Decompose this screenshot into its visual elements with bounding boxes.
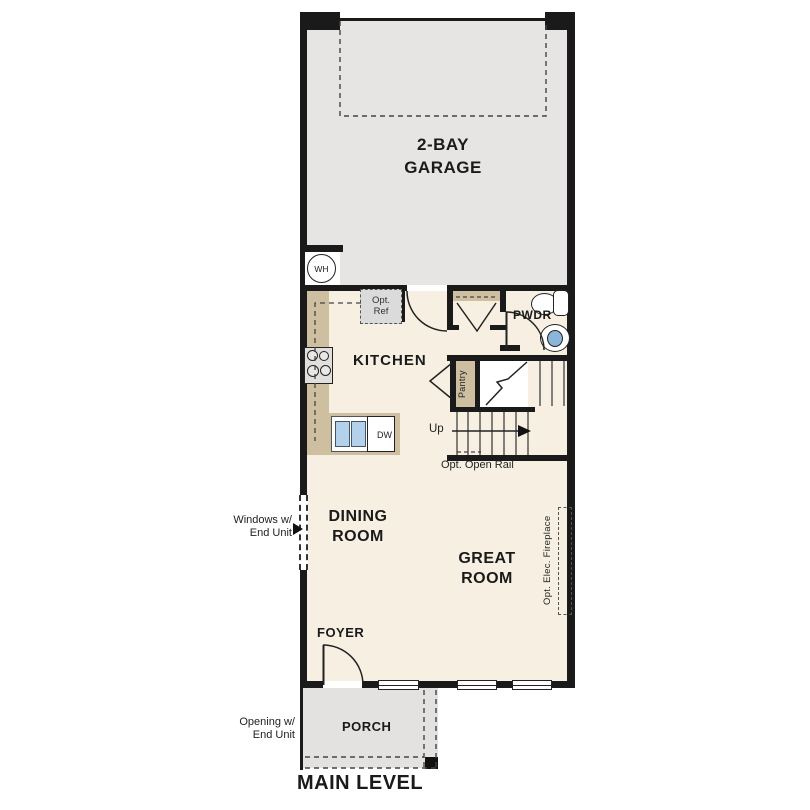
garage-label: 2-BAY GARAGE [343, 134, 543, 180]
windows-annotation-line1: Windows w/ [220, 514, 292, 527]
great-label-line2: ROOM [430, 569, 544, 589]
great-room-label: GREAT ROOM [430, 549, 544, 589]
wall-bottom-c [417, 681, 457, 688]
wall-wh-niche-top [303, 245, 343, 252]
powder-sink-basin-icon [547, 330, 563, 347]
floor-plan: WH Opt. Ref DW [0, 0, 810, 810]
sink-bowl [335, 421, 350, 447]
burner-icon [307, 365, 319, 377]
wall-stairs-mid [450, 407, 535, 412]
window [512, 680, 552, 690]
stove [304, 347, 333, 384]
garage-label-line2: GARAGE [343, 157, 543, 180]
wall-closet-stub-left [447, 325, 459, 330]
wall-bottom-d [495, 681, 512, 688]
windows-annotation-line2: End Unit [220, 527, 292, 540]
fireplace-label: Opt. Elec. Fireplace [542, 503, 556, 617]
stair-upper-run [480, 361, 528, 407]
window [457, 680, 497, 690]
opt-ref-label-line2: Ref [374, 307, 389, 318]
water-heater: WH [307, 254, 336, 283]
dining-room-label: DINING ROOM [308, 507, 408, 547]
plan-title: MAIN LEVEL [297, 772, 423, 795]
porch-post [425, 757, 438, 769]
main-level-floor [307, 291, 567, 681]
garage-label-line1: 2-BAY [343, 134, 543, 157]
wall-bottom-a [300, 681, 323, 688]
dishwasher-label: DW [376, 430, 393, 440]
optional-refrigerator: Opt. Ref [360, 289, 402, 324]
wall-pantry-right [475, 361, 480, 407]
water-heater-label: WH [314, 264, 328, 274]
wall-bottom-b [362, 681, 378, 688]
opening-annotation-line2: End Unit [223, 729, 295, 742]
wall-garage-door-header [338, 18, 548, 21]
dining-label-line2: ROOM [308, 527, 408, 547]
wall-entry-closet [447, 291, 453, 325]
wall-stairs-left [450, 361, 456, 412]
kitchen-label: KITCHEN [353, 352, 427, 369]
windows-end-unit-annotation: Windows w/ End Unit [220, 514, 292, 540]
open-rail-label: Opt. Open Rail [441, 459, 514, 472]
great-label-line1: GREAT [430, 549, 544, 569]
porch-label: PORCH [342, 719, 391, 734]
dining-label-line1: DINING [308, 507, 408, 527]
opening-annotation-line1: Opening w/ [223, 716, 295, 729]
toilet-tank-icon [553, 290, 569, 316]
wall-top-left-stub [300, 12, 340, 30]
window-glass-line [458, 685, 496, 686]
sink-bowl [351, 421, 366, 447]
stair-up-label: Up [429, 423, 444, 437]
burner-icon [320, 365, 331, 376]
window-glass-line [513, 685, 551, 686]
optional-windows-section [299, 495, 308, 570]
foyer-label: FOYER [317, 625, 364, 640]
wall-stairs-top [447, 355, 575, 361]
burner-icon [319, 351, 329, 361]
wall-closet-powder [500, 291, 506, 312]
optional-fireplace-box [558, 507, 572, 615]
opt-ref-label-line1: Opt. [372, 296, 390, 307]
burner-icon [307, 350, 318, 361]
kitchen-sink [331, 416, 369, 452]
wall-powder-bottom-stub [500, 345, 520, 351]
window-glass-line [379, 685, 418, 686]
opening-end-unit-annotation: Opening w/ End Unit [223, 716, 295, 742]
window [378, 680, 419, 690]
wall-bottom-e [550, 681, 575, 688]
powder-label: PWDR [513, 308, 552, 322]
wall-closet-stub-right [490, 325, 506, 330]
porch-left-edge [300, 688, 303, 770]
wall-left-lower [300, 570, 307, 682]
pantry-label: Pantry [457, 362, 474, 406]
dishwasher: DW [367, 416, 395, 452]
